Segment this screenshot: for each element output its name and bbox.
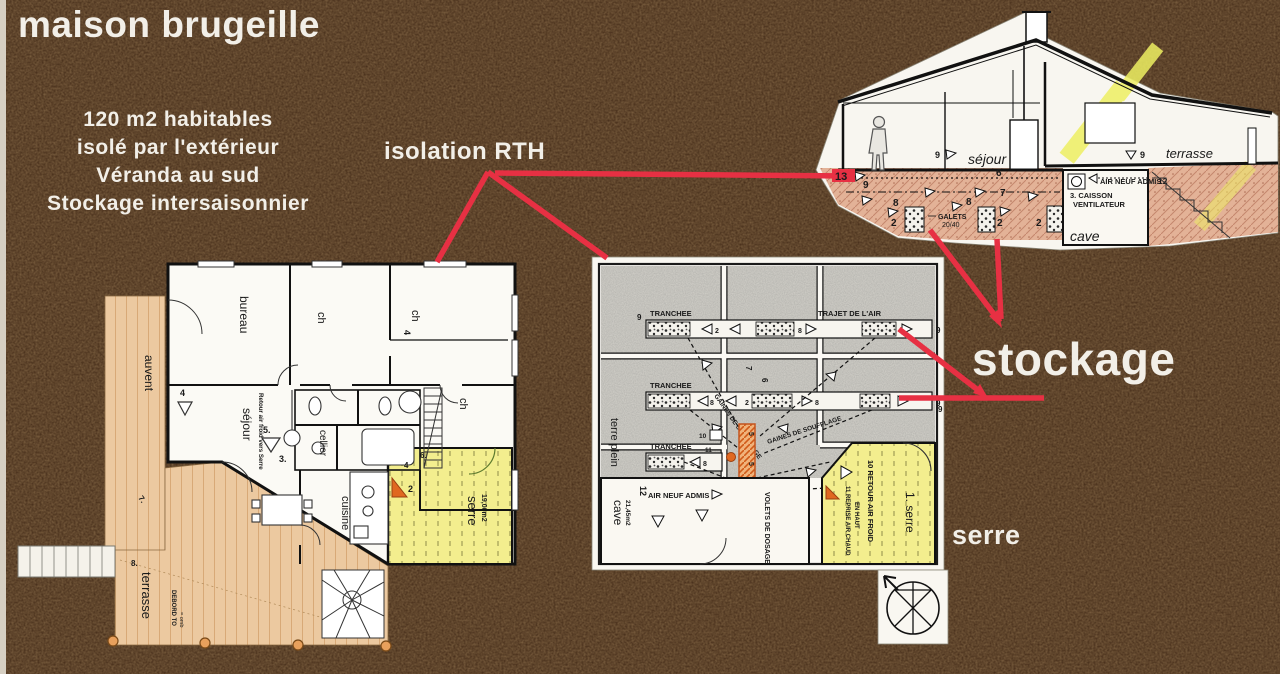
sejour-label: séjour bbox=[968, 151, 1007, 167]
cuisine-label: cuisine bbox=[339, 496, 351, 530]
auvent-label: auvent bbox=[142, 355, 156, 392]
serre-label: serre bbox=[952, 520, 1021, 551]
marker-4a: 4 bbox=[180, 388, 185, 398]
cave-air-neuf: AIR NEUF ADMIS bbox=[648, 491, 709, 500]
reprise-label-1: 11 REPRISE AIR CHAUD bbox=[844, 486, 850, 556]
poster-canvas: maison brugeille 120 m2 habitables isolé… bbox=[0, 0, 1280, 674]
poster-title: maison brugeille bbox=[18, 4, 320, 46]
n7: 7 bbox=[1000, 188, 1006, 199]
subtitle-line-4: Stockage intersaisonnier bbox=[28, 190, 328, 218]
duct-n5b: 5 bbox=[747, 462, 754, 466]
marker-2: 2 bbox=[408, 484, 413, 494]
cave-area-label: 21,45m2 bbox=[624, 500, 631, 526]
tranchee-2-label: TRANCHEE bbox=[650, 381, 692, 390]
sejour-label: séjour bbox=[240, 408, 254, 441]
storage-plan: 2 8 9 9 TRANCHEE TRAJET DE L'AIR 8 2 8 9… bbox=[578, 250, 958, 650]
storage-cave: cave 21,45m2 12 AIR NEUF ADMIS bbox=[601, 478, 809, 564]
caisson-label-2: VENTILATEUR bbox=[1073, 200, 1126, 209]
n6: 6 bbox=[996, 168, 1002, 179]
galets-label-2: 20/40 bbox=[942, 222, 960, 229]
subtitle-line-3: Véranda au sud bbox=[28, 162, 328, 190]
stockage-label: stockage bbox=[972, 332, 1175, 386]
n2a: 2 bbox=[891, 218, 897, 229]
serre-1-label: 1. serre bbox=[903, 492, 917, 533]
n2b: 2 bbox=[997, 218, 1003, 229]
marker-8: 8. bbox=[131, 559, 138, 568]
volets-label: VOLETS DE DOSAGE bbox=[763, 492, 770, 564]
caisson-label-1: 3. CAISSON bbox=[1070, 191, 1113, 200]
t1-n2: 2 bbox=[715, 328, 719, 335]
exterior-steps bbox=[18, 546, 115, 577]
ch2-label: ch bbox=[409, 310, 421, 322]
house-section: AIR NEUF ADMIS 12 3. CAISSON VENTILATEUR… bbox=[810, 5, 1280, 255]
marker-5: 5. bbox=[263, 425, 271, 435]
marker-6: 6. bbox=[420, 451, 427, 460]
t2-n2: 2 bbox=[745, 400, 749, 407]
galets-label-1: GALETS bbox=[938, 214, 967, 221]
n8b: 8 bbox=[966, 197, 972, 208]
subtitle-line-2: isolé par l'extérieur bbox=[28, 134, 328, 162]
t3-n8: 8 bbox=[703, 461, 707, 468]
ch1-label: ch bbox=[315, 312, 327, 324]
n9-ground: 9 bbox=[863, 180, 869, 191]
tranchee-3-label: TRANCHEE bbox=[650, 442, 692, 451]
n9-wall: 9 bbox=[935, 150, 940, 160]
subtitle-line-1: 120 m2 habitables bbox=[28, 106, 328, 134]
n2c: 2 bbox=[1036, 218, 1042, 229]
serre-area-label: 19,00m2 bbox=[480, 494, 487, 522]
t2-n8b: 8 bbox=[815, 400, 819, 407]
section-cave-label: cave bbox=[1070, 228, 1100, 244]
cellier-label: cellier bbox=[317, 430, 328, 457]
trajet-air-label: TRAJET DE L'AIR bbox=[818, 309, 882, 318]
cave-n12: 12 bbox=[638, 486, 648, 496]
isolation-rth-label: isolation RTH bbox=[384, 138, 545, 166]
duct-n11: 11 bbox=[705, 447, 712, 454]
terrasse-label: terrasse bbox=[1166, 146, 1213, 161]
cave-label: cave bbox=[611, 500, 625, 526]
t1-n9: 9 bbox=[637, 313, 642, 322]
marker-3: 3. bbox=[279, 454, 287, 464]
t2-n8: 8 bbox=[710, 400, 714, 407]
terrasse-label: terrasse bbox=[139, 572, 154, 619]
tranchee-1-label: TRANCHEE bbox=[650, 309, 692, 318]
n8a: 8 bbox=[893, 198, 899, 209]
serre-n9: 9 bbox=[938, 405, 943, 414]
debord-note-2: = omb bbox=[178, 612, 184, 627]
storage-n7: 7 bbox=[744, 366, 753, 371]
t1-n8: 8 bbox=[798, 328, 802, 335]
ground-floor-plan: serre 19,00m2 bbox=[0, 250, 540, 674]
ch2-number: 4 bbox=[402, 330, 412, 335]
debord-note-1: DEBORD TO bbox=[170, 590, 176, 626]
marker-4b: 4 bbox=[404, 461, 409, 470]
ch3-label: ch bbox=[457, 398, 469, 410]
reprise-label-2: EN HAUT bbox=[853, 502, 859, 529]
t1-n9r: 9 bbox=[936, 326, 941, 335]
bureau-label: bureau bbox=[237, 296, 251, 333]
n9-terrasse: 9 bbox=[1140, 150, 1145, 160]
terre-plein-label: terre plein bbox=[608, 418, 620, 467]
duct-n5a: 5 bbox=[747, 432, 754, 436]
duct-n10: 10 bbox=[699, 433, 707, 440]
spiral-stair bbox=[322, 570, 384, 638]
retour-air-froid-label: 10 RETOUR AIR FROID bbox=[866, 460, 875, 543]
storage-n6: 6 bbox=[760, 378, 769, 383]
poster-subtitle: 120 m2 habitables isolé par l'extérieur … bbox=[28, 106, 328, 218]
